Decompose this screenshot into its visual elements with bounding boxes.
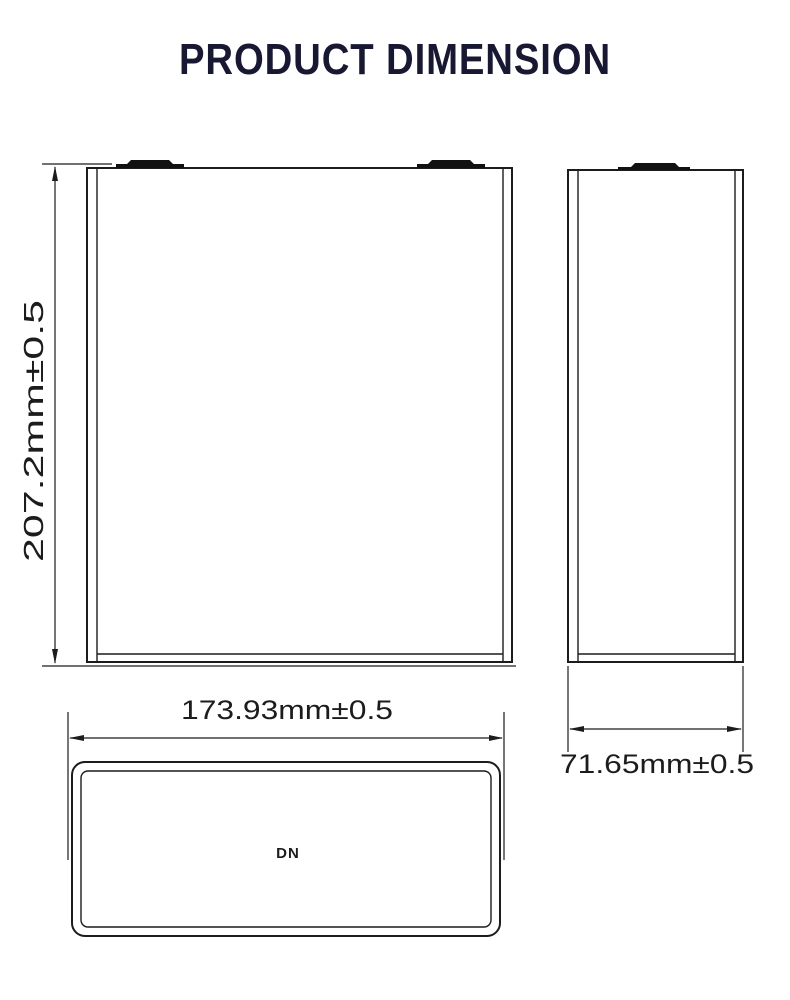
page-title: PRODUCT DIMENSION	[179, 35, 611, 84]
height-dimension-label: 207.2mm±0.5	[18, 300, 49, 562]
front-view: 207.2mm±0.5	[18, 160, 516, 666]
height-dimension: 207.2mm±0.5	[18, 164, 516, 666]
front-view-outline	[87, 168, 512, 662]
thickness-dimension: 71.65mm±0.5	[560, 666, 754, 779]
top-view-marking: DN	[276, 845, 300, 862]
side-view-outline	[568, 170, 743, 662]
side-view-terminal	[618, 163, 690, 170]
thickness-dimension-label: 71.65mm±0.5	[560, 749, 754, 779]
side-view: 71.65mm±0.5	[560, 163, 754, 779]
top-view: 173.93mm±0.5 DN	[68, 695, 504, 936]
width-dimension: 173.93mm±0.5	[68, 695, 504, 860]
front-view-right-terminal	[417, 160, 485, 168]
width-dimension-label: 173.93mm±0.5	[181, 695, 393, 725]
thickness-dim-arrow-left-icon	[569, 726, 584, 732]
product-dimension-drawing: PRODUCT DIMENSION 207.2mm±0.5	[0, 0, 790, 1000]
width-dim-arrow-left-icon	[69, 735, 84, 741]
thickness-dim-arrow-right-icon	[727, 726, 742, 732]
width-dim-arrow-right-icon	[489, 735, 503, 741]
front-view-left-terminal	[116, 160, 184, 168]
height-dim-arrow-up-icon	[52, 166, 58, 181]
height-dim-arrow-down-icon	[52, 649, 58, 664]
